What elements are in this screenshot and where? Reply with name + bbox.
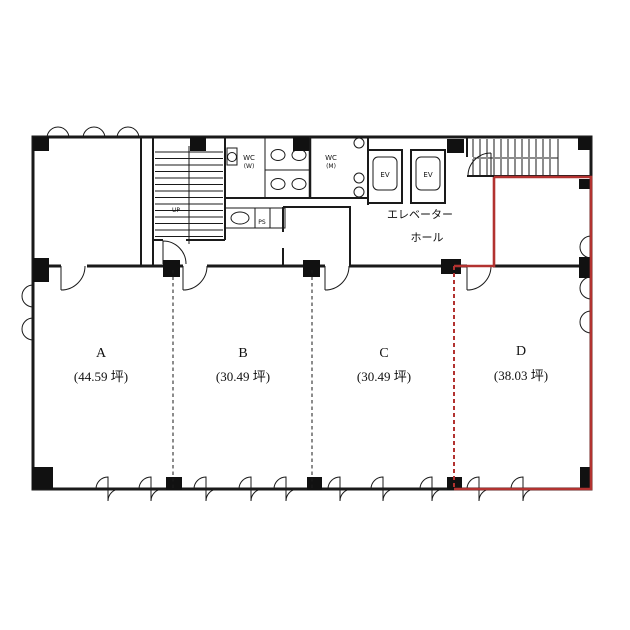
wc-men-label: WC (325, 154, 337, 162)
unit-d-area: D (38.03 坪) (494, 344, 548, 383)
unit-b-name: B (238, 346, 247, 361)
floor-plan-page: UP WC (W) WC (M) PS EV EV (0, 0, 630, 630)
unit-b-area: B (30.49 坪) (216, 346, 270, 384)
stairwell-left: UP (155, 146, 223, 264)
unit-a-name: A (96, 346, 107, 361)
elevator-2-label: EV (423, 171, 432, 179)
elevator-hall: エレベーター ホール (387, 208, 453, 244)
elevator-hall-label-line2: ホール (411, 231, 444, 244)
floor-plan-drawing: UP WC (W) WC (M) PS EV EV (0, 0, 630, 630)
core-walls (33, 137, 591, 266)
pipe-shaft-counter: PS (225, 208, 285, 228)
wc-women: WC (W) (227, 148, 306, 190)
unit-a-area: A (44.59 坪) (74, 346, 128, 384)
elevator-2: EV (411, 150, 445, 203)
unit-a-size: (44.59 坪) (74, 369, 128, 384)
stair-up-label: UP (172, 207, 180, 214)
wc-women-sub-label: (W) (244, 163, 255, 170)
elevator-1: EV (368, 150, 402, 203)
window-symbols (22, 127, 591, 501)
unit-d-highlight-outline (454, 177, 591, 489)
outer-wall (33, 137, 591, 489)
wc-men: WC (M) (325, 138, 364, 197)
elevator-1-label: EV (380, 171, 389, 179)
unit-d-name: D (516, 344, 526, 359)
unit-c-area: C (30.49 坪) (357, 346, 411, 384)
wc-women-label: WC (243, 154, 255, 162)
wc-men-sub-label: (M) (326, 163, 336, 170)
stairwell-right (467, 137, 591, 176)
unit-b-size: (30.49 坪) (216, 369, 270, 384)
unit-c-size: (30.49 坪) (357, 369, 411, 384)
elevator-hall-label-line1: エレベーター (387, 208, 453, 221)
unit-c-name: C (379, 346, 388, 361)
entrance-door-arcs (61, 266, 491, 290)
structural-columns (32, 137, 591, 490)
pipe-shaft-label: PS (258, 219, 266, 226)
unit-d-size: (38.03 坪) (494, 368, 548, 383)
